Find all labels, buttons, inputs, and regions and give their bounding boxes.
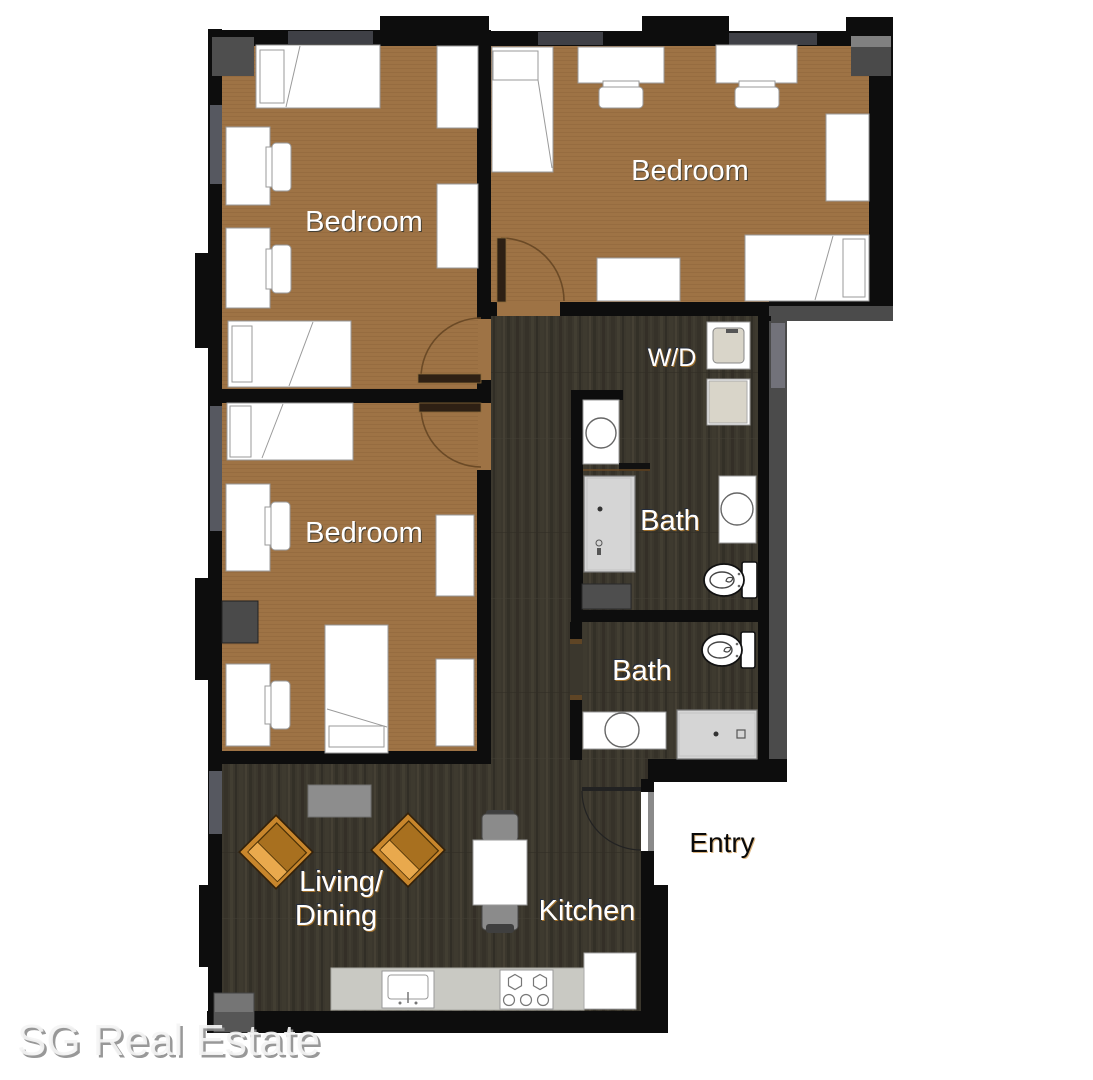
svg-text:Dining: Dining: [295, 900, 377, 932]
svg-text:Bedroom: Bedroom: [631, 155, 749, 187]
svg-text:Bedroom: Bedroom: [305, 517, 423, 549]
svg-text:Bath: Bath: [612, 655, 672, 687]
svg-text:Bedroom: Bedroom: [305, 206, 423, 238]
svg-text:SG Real Estate: SG Real Estate: [17, 1016, 320, 1065]
svg-text:W/D: W/D: [648, 344, 697, 372]
svg-text:Entry: Entry: [689, 827, 754, 858]
svg-text:Living/: Living/: [299, 866, 384, 898]
svg-text:Kitchen: Kitchen: [539, 895, 636, 927]
svg-text:Bath: Bath: [640, 505, 700, 537]
